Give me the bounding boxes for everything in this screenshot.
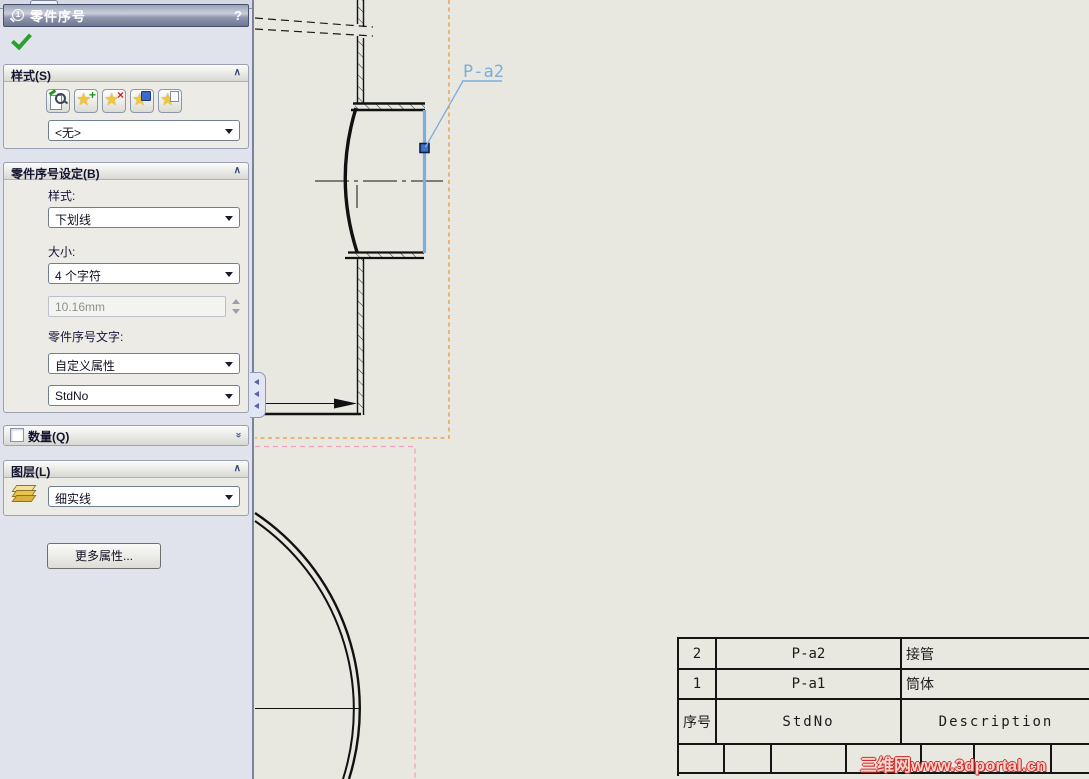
quantity-checkbox[interactable] [10, 428, 24, 442]
more-properties-button[interactable]: 更多属性... [47, 543, 161, 569]
quantity-group: 数量(Q) » [3, 425, 249, 446]
balloon-size-dropdown[interactable]: 4 个字符 [48, 263, 240, 284]
plus-icon: + [89, 89, 96, 101]
apply-defaults-button[interactable] [46, 89, 70, 113]
quantity-group-header[interactable]: 数量(Q) » [4, 426, 248, 445]
style-group: 样式(S) ∧ ★+ ★× ★ ★ <无> [3, 64, 249, 149]
balloon-text-label: 零件序号文字: [48, 328, 123, 345]
shell-body-arcs[interactable] [255, 513, 360, 779]
bom-cell-no: 2 [679, 639, 717, 670]
custom-size-field: 10.16mm [48, 296, 226, 317]
delete-style-button[interactable]: ★× [102, 89, 126, 113]
chevron-up-icon[interactable]: ∧ [234, 166, 241, 176]
chevron-down-icon [225, 495, 233, 500]
magnifier-handle-icon [63, 100, 68, 105]
custom-property-dropdown[interactable]: StdNo [48, 385, 240, 406]
settings-group-label: 零件序号设定(B) [11, 167, 100, 181]
bom-cell-stdno: P-a1 [717, 670, 902, 700]
view-boundary-pink [255, 447, 415, 779]
panel-header: 1 零件序号 ? [3, 4, 249, 27]
balloon-text-source-value: 自定义属性 [55, 359, 115, 373]
titleblock-cell [679, 745, 725, 774]
solidworks-window: P-a2 2 P-a2 接管 1 P-a1 筒体 序号 StdNo Descri… [0, 0, 1089, 779]
style-group-label: 样式(S) [11, 69, 51, 83]
style-label: 样式: [48, 187, 75, 204]
bom-header-no: 序号 [679, 700, 717, 745]
break-dashed-lines [255, 18, 373, 36]
custom-property-value: StdNo [55, 389, 88, 403]
balloon-text[interactable]: P-a2 [463, 62, 504, 82]
panel-collapse-tab[interactable] [250, 372, 266, 418]
chevron-down-icon [225, 272, 233, 277]
left-arrow-icon [254, 403, 259, 409]
bom-header-stdno: StdNo [717, 700, 902, 745]
x-icon: × [117, 89, 124, 101]
layers-icon [12, 484, 36, 504]
shell-curve-edge[interactable] [345, 108, 357, 252]
chevron-down-icon [225, 216, 233, 221]
quantity-group-label: 数量(Q) [28, 428, 69, 445]
bom-cell-desc: 筒体 [902, 670, 1089, 700]
layer-dropdown[interactable]: 细实线 [48, 486, 240, 507]
layer-group-label: 图层(L) [11, 465, 50, 479]
size-stepper[interactable] [230, 296, 242, 317]
floppy-icon [141, 91, 151, 101]
bom-cell-no: 1 [679, 670, 717, 700]
bom-cell-desc: 接管 [902, 639, 1089, 670]
double-chevron-down-icon[interactable]: » [233, 432, 243, 438]
nozzle-pipe-lower[interactable] [357, 258, 364, 415]
balloon-settings-group: 零件序号设定(B) ∧ 样式: 下划线 大小: 4 个字符 10.16mm 零件… [3, 162, 249, 413]
property-manager-panel: 1 零件序号 ? 样式(S) ∧ ★+ ★× ★ [0, 0, 254, 779]
flange-plate-bottom[interactable] [345, 252, 424, 258]
style-favorites-dropdown[interactable]: <无> [48, 120, 240, 141]
settings-group-header[interactable]: 零件序号设定(B) ∧ [4, 163, 248, 180]
balloon-icon: 1 [10, 8, 25, 23]
balloon-attach-handle[interactable] [420, 144, 429, 153]
layer-group-header[interactable]: 图层(L) ∧ [4, 461, 248, 478]
sheet-boundary-orange [255, 0, 449, 438]
balloon-size-value: 4 个字符 [55, 269, 101, 283]
layer-group: 图层(L) ∧ 细实线 [3, 460, 249, 516]
chevron-down-icon [225, 129, 233, 134]
style-group-header[interactable]: 样式(S) ∧ [4, 65, 248, 82]
titleblock-cell [772, 745, 847, 774]
chevron-up-icon[interactable]: ∧ [234, 464, 241, 474]
left-arrow-icon [254, 391, 259, 397]
page-icon [170, 91, 179, 102]
help-icon[interactable]: ? [234, 8, 242, 23]
balloon-style-dropdown[interactable]: 下划线 [48, 207, 240, 228]
chevron-down-icon [225, 394, 233, 399]
chevron-down-icon [225, 362, 233, 367]
load-style-button[interactable]: ★ [158, 89, 182, 113]
titleblock-cell [725, 745, 772, 774]
layer-value: 细实线 [55, 492, 91, 506]
balloon-style-value: 下划线 [55, 213, 91, 227]
balloon-text-source-dropdown[interactable]: 自定义属性 [48, 353, 240, 374]
chevron-up-icon[interactable]: ∧ [234, 68, 241, 78]
stepper-down-icon [232, 309, 240, 314]
left-arrow-icon [254, 379, 259, 385]
nozzle-pipe-upper[interactable] [357, 0, 364, 103]
check-icon [11, 29, 32, 50]
size-label: 大小: [48, 243, 75, 260]
watermark: 三维网www.3dportal.cn [860, 751, 1080, 776]
ok-button[interactable] [9, 32, 33, 52]
bom-header-desc: Description [902, 700, 1089, 745]
panel-title: 零件序号 [30, 6, 234, 25]
save-style-button[interactable]: ★ [130, 89, 154, 113]
balloon-annotation[interactable]: P-a2 [426, 62, 504, 147]
style-favorites-value: <无> [55, 126, 81, 140]
arrow-head [334, 399, 357, 409]
stepper-up-icon [232, 299, 240, 304]
add-style-button[interactable]: ★+ [74, 89, 98, 113]
flange-plate-top[interactable] [351, 103, 425, 110]
bom-cell-stdno: P-a2 [717, 639, 902, 670]
